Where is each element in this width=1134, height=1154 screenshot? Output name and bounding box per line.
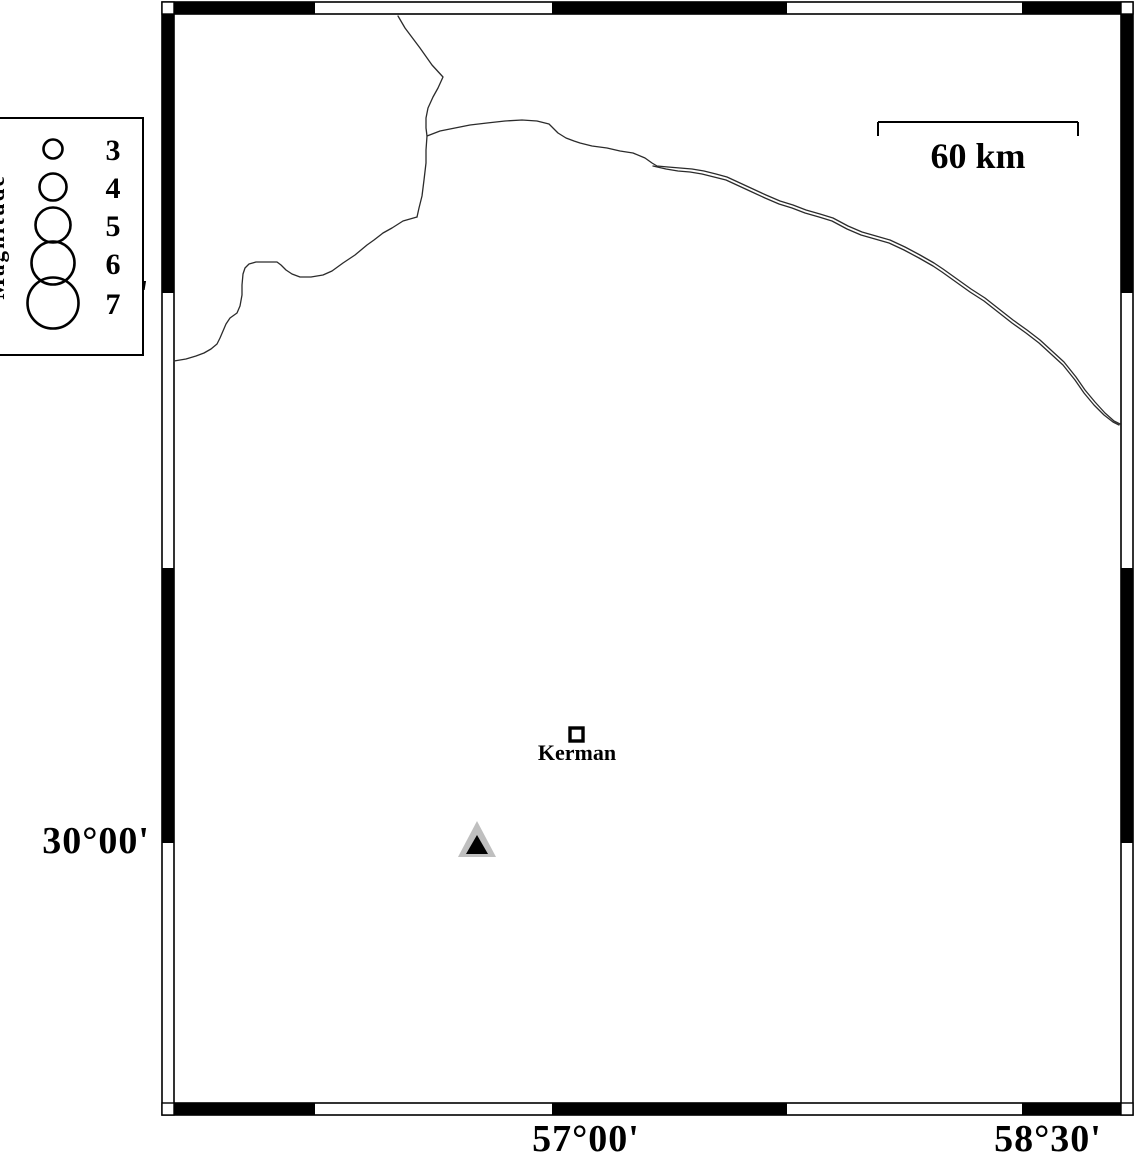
frame-corner: [162, 1103, 174, 1115]
legend-label-m6: 6: [106, 248, 121, 281]
frame-seg: [1022, 1103, 1121, 1115]
frame-seg: [162, 14, 174, 293]
magnitude-legend: Magnitude 3 4 5 6 7: [0, 118, 143, 355]
frame-seg: [552, 1103, 787, 1115]
frame-seg: [1121, 568, 1133, 843]
legend-label-m4: 4: [106, 172, 121, 205]
frame-corner: [1121, 2, 1133, 14]
scale-bar-label: 60 km: [930, 136, 1025, 176]
city-kerman: Kerman: [538, 728, 616, 765]
legend-title: Magnitude: [0, 174, 9, 299]
frame-seg: [162, 568, 174, 843]
city-label: Kerman: [538, 740, 616, 765]
lon-label-58-30: 58°30': [994, 1118, 1102, 1154]
frame-corner: [162, 2, 174, 14]
border-line-north: [398, 16, 443, 217]
frame-inner-line: [174, 14, 1121, 1103]
scale-bar-line: [878, 122, 1078, 136]
frame-seg: [1121, 14, 1133, 293]
legend-label-m3: 3: [106, 134, 121, 167]
frame-seg: [1022, 2, 1121, 14]
frame-corner: [1121, 1103, 1133, 1115]
coastlines: [174, 16, 1120, 425]
frame-seg: [552, 2, 787, 14]
frame-seg: [174, 1103, 315, 1115]
map-figure: 31°30': [0, 0, 1134, 1154]
legend-label-m5: 5: [106, 210, 121, 243]
lat-label-30-00: 30°00': [42, 820, 150, 862]
coastline-east-lower: [653, 166, 1119, 425]
legend-label-m7: 7: [106, 288, 121, 321]
frame-seg: [174, 2, 315, 14]
coastline-west: [174, 217, 417, 361]
station-triangle: [458, 821, 496, 857]
scale-bar: 60 km: [878, 122, 1078, 176]
lon-label-57-00: 57°00': [532, 1118, 640, 1154]
